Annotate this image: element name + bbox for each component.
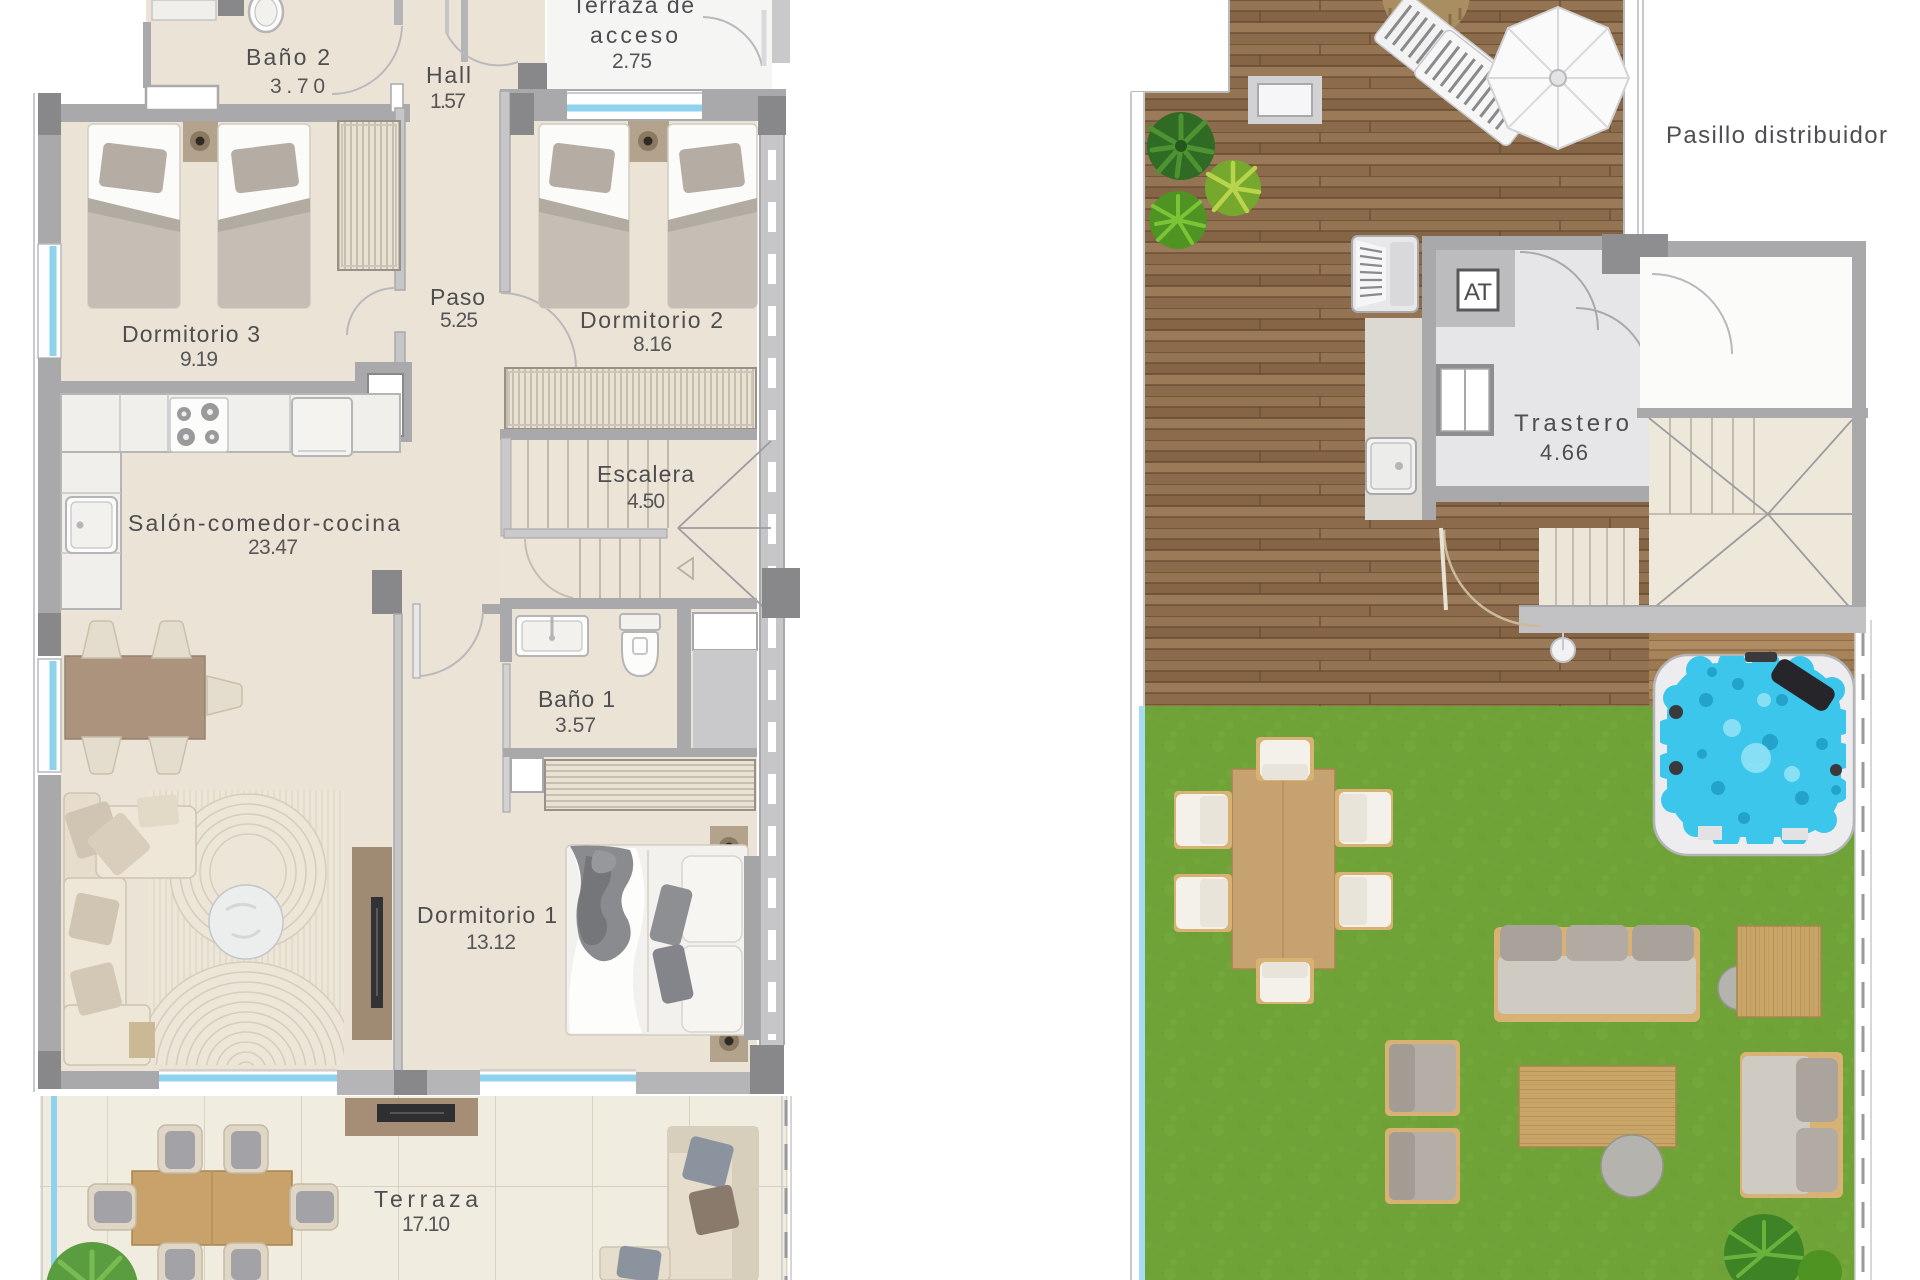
svg-text:5.25: 5.25 xyxy=(440,309,478,332)
svg-text:AT: AT xyxy=(1464,279,1492,306)
svg-text:2.75: 2.75 xyxy=(612,50,652,73)
svg-text:Dormitorio 2: Dormitorio 2 xyxy=(580,307,723,333)
svg-text:17.10: 17.10 xyxy=(402,1213,450,1236)
svg-text:4.50: 4.50 xyxy=(627,490,665,513)
svg-text:8.16: 8.16 xyxy=(633,333,672,356)
svg-text:9.19: 9.19 xyxy=(180,348,218,371)
svg-text:Terraza de: Terraza de xyxy=(572,0,694,18)
svg-text:3.57: 3.57 xyxy=(555,714,596,737)
svg-text:Trastero: Trastero xyxy=(1514,410,1629,437)
svg-text:23.47: 23.47 xyxy=(248,536,298,559)
svg-text:Escalera: Escalera xyxy=(597,461,694,487)
svg-text:Pasillo distribuidor: Pasillo distribuidor xyxy=(1666,122,1887,149)
svg-text:Dormitorio 3: Dormitorio 3 xyxy=(122,321,260,347)
svg-text:4.66: 4.66 xyxy=(1540,440,1588,465)
svg-text:3.70: 3.70 xyxy=(270,75,325,98)
svg-text:Baño 2: Baño 2 xyxy=(246,44,330,70)
svg-text:Paso: Paso xyxy=(430,284,485,310)
svg-text:Baño 1: Baño 1 xyxy=(538,686,615,712)
svg-text:Salón-comedor-cocina: Salón-comedor-cocina xyxy=(128,510,400,536)
svg-text:1.57: 1.57 xyxy=(430,90,466,113)
svg-text:Dormitorio 1: Dormitorio 1 xyxy=(417,902,557,928)
svg-text:13.12: 13.12 xyxy=(466,931,516,954)
